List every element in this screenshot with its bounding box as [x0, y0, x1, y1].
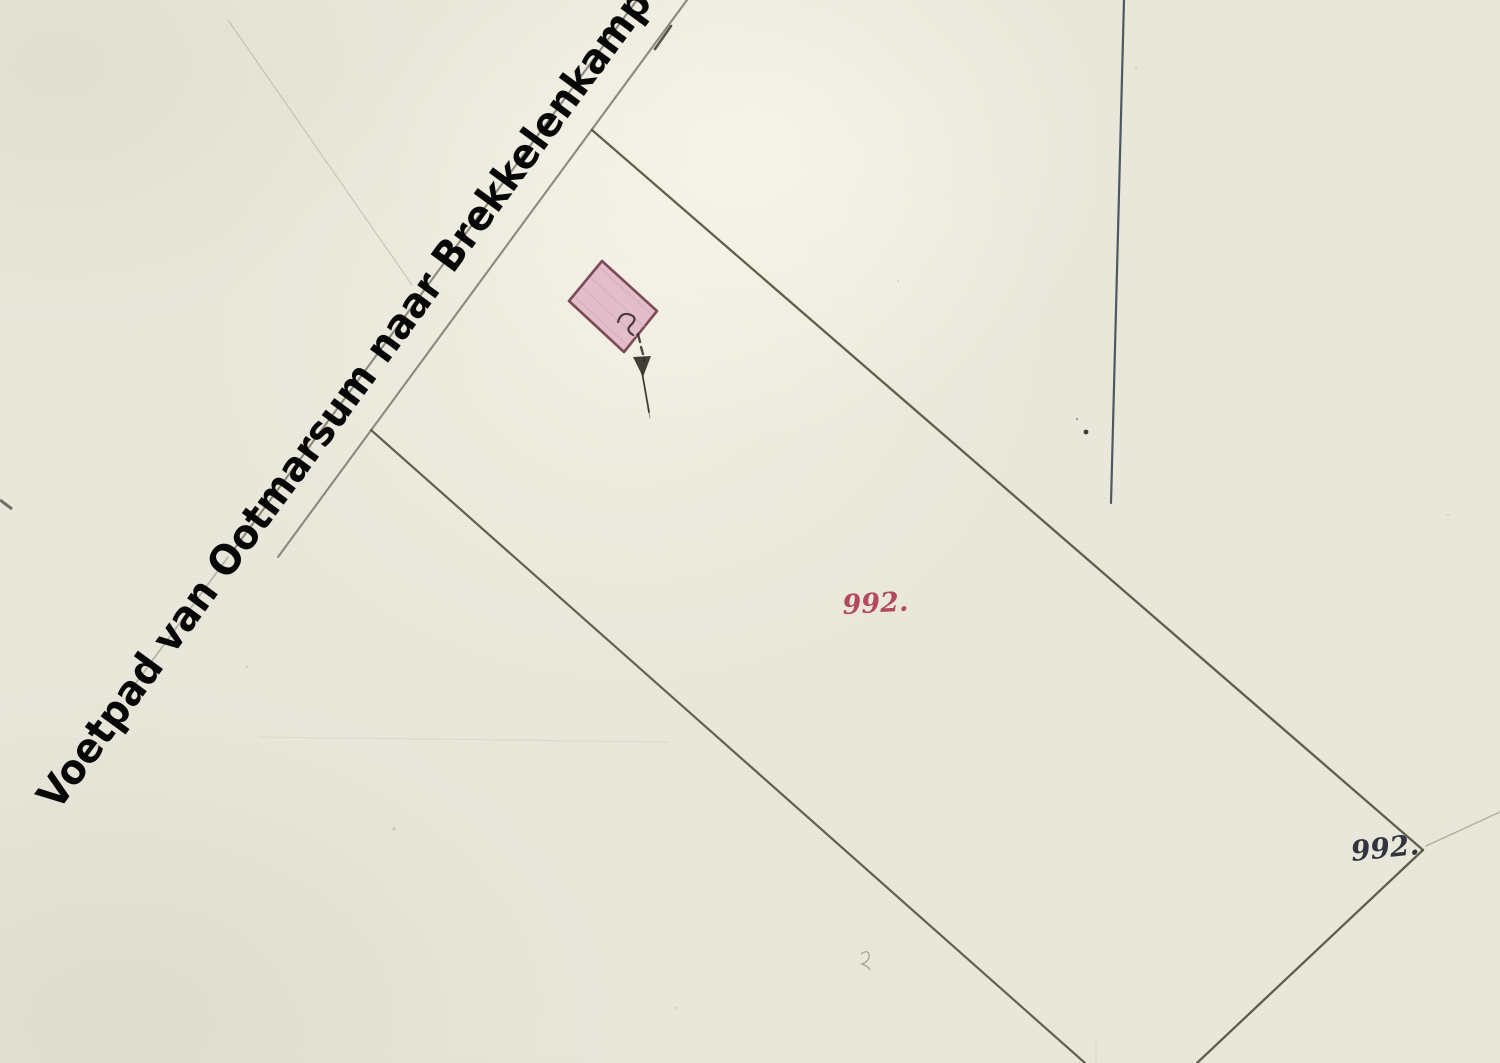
paper-speck [1135, 67, 1138, 70]
faint-crease-line [228, 20, 412, 285]
paper-speck [675, 1007, 678, 1010]
parcel-boundary-northeast [592, 130, 1423, 850]
paper-speck [897, 280, 899, 282]
cadastral-map-canvas: Voetpad van Ootmarsum naar Brekkelenkamp… [0, 0, 1500, 1063]
faint-horizontal-crease [258, 737, 668, 742]
arrow-dash [638, 334, 640, 342]
road-line-retrace-mark [655, 26, 671, 49]
road-line-right [278, 0, 687, 557]
paper-speck [1447, 514, 1449, 516]
paper-speck [246, 666, 248, 668]
parcel-boundary-southeast [1197, 850, 1423, 1063]
arrow-tail [642, 372, 649, 412]
paper-speck [393, 828, 396, 831]
parcel-boundary-southwest [371, 430, 1085, 1063]
parcel-992-label-red: 992. [842, 587, 909, 621]
small-pen-mark [861, 952, 870, 970]
arrow-dash [641, 347, 643, 354]
ink-dot [1084, 430, 1089, 435]
map-drawing-layer: Voetpad van Ootmarsum naar Brekkelenkamp… [0, 0, 1500, 1063]
parcel-boundaries [371, 130, 1500, 1063]
ink-speck [1076, 418, 1078, 420]
road-name-label: Voetpad van Ootmarsum naar Brekkelenkamp [27, 0, 661, 818]
building-footprint [569, 261, 657, 352]
survey-line-blue [1111, 0, 1124, 503]
left-edge-ink-mark [0, 500, 12, 509]
parcel-corner-faint-extension [1426, 812, 1500, 846]
